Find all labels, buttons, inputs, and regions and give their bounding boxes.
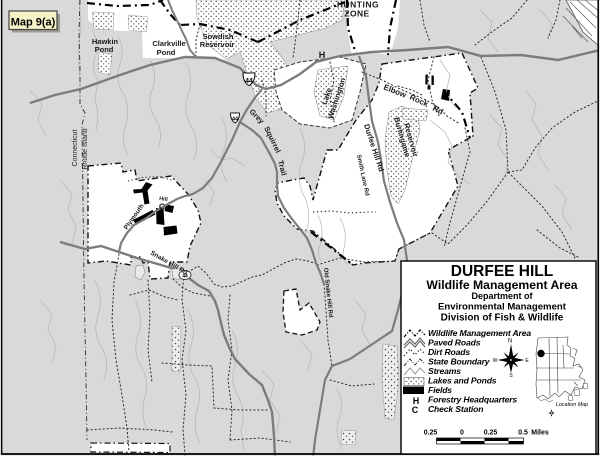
svg-text:Dirt Roads: Dirt Roads [428, 347, 470, 357]
svg-text:Rhode Island: Rhode Island [82, 128, 89, 169]
svg-text:C: C [412, 405, 419, 415]
svg-text:Fields: Fields [428, 385, 452, 395]
svg-text:Location Map: Location Map [556, 402, 588, 408]
svg-text:44: 44 [232, 117, 239, 123]
svg-text:Environmental Management: Environmental Management [438, 302, 567, 313]
svg-text:Forestry Headquarters: Forestry Headquarters [428, 395, 517, 405]
svg-text:0: 0 [460, 430, 464, 437]
svg-text:Reservoir: Reservoir [200, 40, 235, 49]
svg-text:0.5: 0.5 [518, 430, 528, 437]
svg-text:0.25: 0.25 [484, 430, 498, 437]
svg-text:ZONE: ZONE [344, 9, 369, 19]
svg-text:Check Station: Check Station [428, 404, 483, 414]
svg-text:Miles: Miles [531, 430, 549, 437]
svg-text:Connecticut: Connecticut [72, 129, 79, 166]
svg-text:Pond: Pond [157, 48, 176, 57]
svg-text:0.25: 0.25 [424, 430, 438, 437]
svg-text:Wildlife Management Area: Wildlife Management Area [428, 328, 531, 338]
svg-text:Paved Roads: Paved Roads [428, 338, 481, 348]
svg-text:N: N [508, 339, 512, 345]
svg-text:State Boundary: State Boundary [428, 357, 491, 367]
svg-text:W: W [493, 358, 498, 364]
svg-text:Streams: Streams [428, 366, 461, 376]
svg-text:Pond: Pond [95, 45, 114, 54]
svg-text:Department of: Department of [471, 291, 533, 301]
svg-text:Map 9(a): Map 9(a) [11, 17, 56, 29]
svg-text:C: C [159, 202, 165, 212]
svg-text:Division of Fish & Wildlife: Division of Fish & Wildlife [441, 313, 564, 324]
svg-text:Wildlife Management Area: Wildlife Management Area [426, 278, 577, 292]
svg-text:44: 44 [245, 78, 253, 85]
svg-text:Clarkville: Clarkville [152, 39, 185, 48]
svg-text:Lakes and Ponds: Lakes and Ponds [428, 376, 497, 386]
svg-text:H: H [319, 50, 326, 60]
